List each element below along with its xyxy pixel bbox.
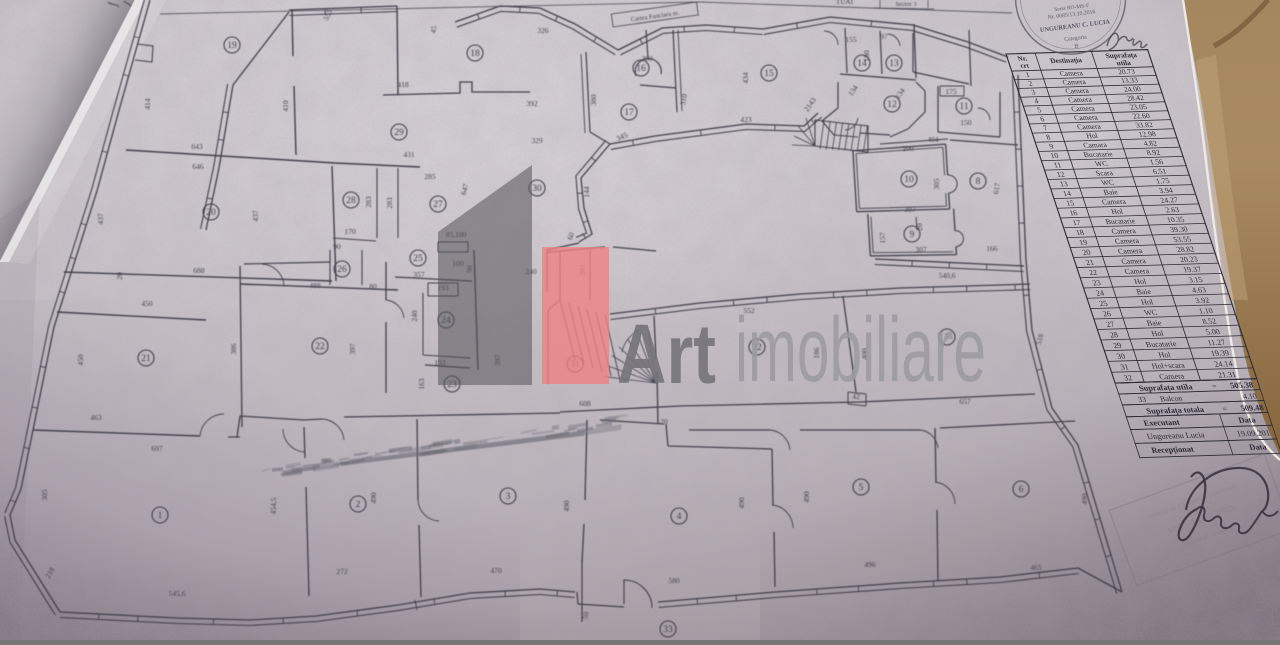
svg-text:386: 386 bbox=[229, 343, 238, 355]
svg-text:643: 643 bbox=[191, 142, 203, 151]
svg-text:Recepționat: Recepționat bbox=[1150, 445, 1195, 455]
svg-text:28.82: 28.82 bbox=[1175, 245, 1195, 254]
svg-text:90: 90 bbox=[333, 242, 341, 251]
svg-text:97: 97 bbox=[880, 32, 888, 41]
svg-text:53.55: 53.55 bbox=[1172, 235, 1192, 244]
svg-text:240: 240 bbox=[410, 310, 419, 322]
svg-text:20: 20 bbox=[115, 272, 124, 280]
svg-text:27: 27 bbox=[433, 200, 443, 210]
svg-text:166: 166 bbox=[986, 244, 998, 253]
svg-text:180: 180 bbox=[862, 50, 871, 62]
svg-text:24.00: 24.00 bbox=[1123, 84, 1143, 93]
svg-text:170: 170 bbox=[344, 227, 356, 236]
svg-text:39.30: 39.30 bbox=[1169, 225, 1189, 234]
svg-text:326: 326 bbox=[537, 26, 549, 35]
svg-text:13: 13 bbox=[889, 59, 899, 69]
svg-text:20: 20 bbox=[206, 208, 216, 218]
svg-text:16: 16 bbox=[636, 64, 646, 74]
svg-text:329: 329 bbox=[531, 136, 543, 145]
svg-text:24.27: 24.27 bbox=[1159, 195, 1179, 204]
svg-text:12.98: 12.98 bbox=[1137, 129, 1157, 138]
svg-text:Camera: Camera bbox=[1076, 122, 1103, 131]
svg-text:505.38: 505.38 bbox=[1229, 381, 1255, 390]
svg-text:15: 15 bbox=[764, 69, 774, 79]
svg-text:450: 450 bbox=[76, 354, 85, 366]
svg-text:307: 307 bbox=[915, 245, 927, 254]
svg-text:21.31: 21.31 bbox=[1217, 370, 1238, 379]
svg-text:175: 175 bbox=[945, 87, 957, 96]
svg-text:4: 4 bbox=[677, 512, 682, 522]
svg-text:392: 392 bbox=[526, 99, 538, 108]
svg-text:540,6: 540,6 bbox=[939, 271, 956, 280]
svg-text:509.48: 509.48 bbox=[1239, 403, 1265, 412]
svg-text:155: 155 bbox=[845, 35, 857, 44]
svg-text:26: 26 bbox=[337, 265, 347, 275]
svg-text:144: 144 bbox=[582, 186, 591, 198]
svg-text:8: 8 bbox=[976, 177, 981, 187]
svg-text:Art: Art bbox=[617, 307, 716, 401]
svg-text:260: 260 bbox=[641, 54, 653, 63]
svg-text:5: 5 bbox=[859, 483, 864, 493]
svg-text:19.09.201: 19.09.201 bbox=[1235, 429, 1271, 439]
svg-text:20.23: 20.23 bbox=[1179, 255, 1199, 264]
svg-text:Sector 3: Sector 3 bbox=[895, 1, 916, 8]
svg-text:580: 580 bbox=[668, 576, 680, 585]
svg-text:10.35: 10.35 bbox=[1165, 215, 1185, 224]
svg-text:Bucatarie: Bucatarie bbox=[1082, 149, 1114, 159]
svg-text:380: 380 bbox=[589, 94, 598, 106]
svg-text:19.37: 19.37 bbox=[1182, 265, 1202, 274]
svg-text:Camera: Camera bbox=[1110, 226, 1137, 235]
svg-text:13.33: 13.33 bbox=[1120, 76, 1140, 85]
svg-text:Suprafața totala: Suprafața totala bbox=[1145, 405, 1206, 415]
svg-text:150: 150 bbox=[960, 118, 972, 127]
svg-text:397: 397 bbox=[348, 343, 357, 355]
svg-text:28.42: 28.42 bbox=[1125, 93, 1145, 102]
svg-text:20: 20 bbox=[660, 417, 668, 426]
svg-text:305: 305 bbox=[40, 489, 49, 501]
svg-text:3.92: 3.92 bbox=[1194, 296, 1211, 305]
svg-text:404: 404 bbox=[927, 135, 939, 144]
svg-text:200: 200 bbox=[902, 144, 914, 153]
svg-text:4.63: 4.63 bbox=[1191, 285, 1208, 294]
svg-text:437: 437 bbox=[251, 210, 260, 222]
svg-text:17: 17 bbox=[624, 108, 634, 118]
svg-text:1.10: 1.10 bbox=[1198, 306, 1215, 315]
svg-text:imobiliare: imobiliare bbox=[735, 299, 986, 401]
svg-text:490: 490 bbox=[1080, 493, 1089, 505]
svg-text:22: 22 bbox=[315, 342, 325, 352]
svg-text:283: 283 bbox=[385, 197, 394, 209]
svg-text:33: 33 bbox=[663, 625, 673, 635]
svg-text:454,5: 454,5 bbox=[269, 497, 278, 514]
svg-text:450: 450 bbox=[141, 299, 153, 308]
svg-text:Executant: Executant bbox=[1142, 418, 1181, 428]
svg-text:Destinația: Destinația bbox=[1049, 55, 1084, 65]
svg-text:9: 9 bbox=[910, 230, 915, 240]
svg-text:496: 496 bbox=[864, 560, 876, 569]
svg-text:490: 490 bbox=[562, 500, 571, 512]
svg-text:307: 307 bbox=[904, 205, 916, 214]
svg-text:Camera: Camera bbox=[1067, 95, 1094, 104]
svg-text:21: 21 bbox=[141, 354, 151, 364]
svg-text:Camera: Camera bbox=[1100, 197, 1127, 206]
svg-text:Camera: Camera bbox=[1073, 113, 1100, 122]
svg-text:414: 414 bbox=[143, 98, 152, 110]
svg-text:470: 470 bbox=[490, 566, 502, 575]
svg-text:Bucatarie: Bucatarie bbox=[1104, 216, 1137, 226]
svg-text:490: 490 bbox=[369, 492, 378, 504]
svg-text:B: B bbox=[1074, 44, 1079, 50]
svg-text:Suprafața utila: Suprafața utila bbox=[1138, 383, 1195, 393]
svg-text:697: 697 bbox=[151, 444, 163, 453]
svg-text:20.73: 20.73 bbox=[1117, 67, 1137, 76]
svg-text:163: 163 bbox=[417, 378, 426, 390]
svg-text:437: 437 bbox=[96, 213, 105, 225]
svg-text:490: 490 bbox=[737, 497, 746, 509]
svg-text:Camera: Camera bbox=[1070, 104, 1097, 113]
svg-text:545,6: 545,6 bbox=[169, 589, 186, 598]
svg-text:Ungureanu Lucia: Ungureanu Lucia bbox=[1146, 431, 1206, 441]
svg-text:Camera: Camera bbox=[1113, 236, 1140, 245]
svg-text:3: 3 bbox=[506, 492, 511, 502]
svg-text:463: 463 bbox=[90, 413, 102, 422]
svg-text:Bucatarie: Bucatarie bbox=[1144, 339, 1178, 349]
svg-text:11.27: 11.27 bbox=[1206, 338, 1226, 347]
svg-text:33.82: 33.82 bbox=[1134, 120, 1154, 129]
svg-text:25: 25 bbox=[413, 254, 423, 264]
svg-text:Camera: Camera bbox=[1158, 372, 1186, 381]
svg-text:410: 410 bbox=[281, 100, 290, 112]
svg-text:10: 10 bbox=[904, 175, 914, 185]
svg-text:TUAT: TUAT bbox=[836, 0, 855, 6]
svg-text:8.52: 8.52 bbox=[1201, 317, 1218, 326]
svg-text:490: 490 bbox=[802, 491, 811, 503]
svg-text:11: 11 bbox=[959, 102, 968, 112]
svg-text:688: 688 bbox=[193, 266, 205, 275]
svg-text:80: 80 bbox=[369, 282, 377, 291]
svg-text:Camera: Camera bbox=[1117, 246, 1144, 255]
svg-text:6: 6 bbox=[1019, 485, 1024, 495]
svg-text:357: 357 bbox=[413, 270, 425, 279]
svg-text:283: 283 bbox=[364, 196, 373, 208]
svg-text:12: 12 bbox=[887, 100, 897, 110]
svg-text:20: 20 bbox=[915, 223, 924, 231]
svg-text:28: 28 bbox=[346, 196, 356, 206]
svg-text:22.60: 22.60 bbox=[1131, 111, 1151, 120]
svg-text:272: 272 bbox=[336, 567, 348, 576]
svg-text:465: 465 bbox=[1030, 563, 1042, 572]
svg-text:2: 2 bbox=[356, 500, 361, 510]
svg-text:29: 29 bbox=[394, 128, 404, 138]
svg-text:18: 18 bbox=[470, 49, 480, 59]
svg-text:Camera: Camera bbox=[1123, 267, 1151, 276]
svg-text:305: 305 bbox=[932, 178, 941, 190]
svg-text:5.00: 5.00 bbox=[1204, 327, 1221, 336]
svg-text:157: 157 bbox=[878, 232, 887, 244]
svg-text:30: 30 bbox=[532, 184, 542, 194]
svg-text:488: 488 bbox=[309, 281, 321, 290]
svg-text:Camera: Camera bbox=[1064, 86, 1091, 95]
svg-text:646: 646 bbox=[192, 162, 204, 171]
svg-text:19.39: 19.39 bbox=[1210, 349, 1231, 358]
svg-text:431: 431 bbox=[403, 150, 415, 159]
svg-text:Camera: Camera bbox=[1120, 256, 1147, 265]
svg-text:19: 19 bbox=[227, 41, 237, 51]
svg-text:285: 285 bbox=[424, 172, 436, 181]
svg-text:434: 434 bbox=[741, 72, 750, 84]
svg-text:423: 423 bbox=[740, 115, 752, 124]
svg-text:Scara: Scara bbox=[1094, 168, 1114, 177]
svg-text:608: 608 bbox=[579, 399, 591, 408]
svg-text:Hol+scara: Hol+scara bbox=[1150, 361, 1186, 371]
svg-text:1: 1 bbox=[158, 511, 163, 521]
svg-text:418: 418 bbox=[397, 80, 409, 89]
svg-text:3.15: 3.15 bbox=[1187, 275, 1204, 284]
svg-text:Camara: Camara bbox=[1082, 140, 1109, 149]
svg-text:24.14: 24.14 bbox=[1213, 359, 1234, 368]
svg-text:Balcon: Balcon bbox=[1159, 394, 1184, 403]
svg-text:23.05: 23.05 bbox=[1128, 102, 1148, 111]
